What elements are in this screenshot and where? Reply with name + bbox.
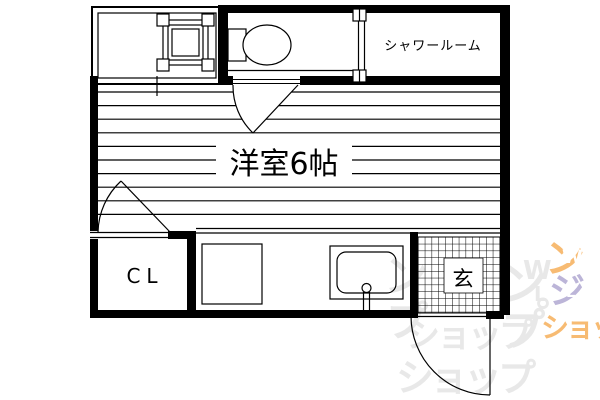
watermark-glyph: ショップ xyxy=(406,316,533,356)
wall-segment xyxy=(300,76,502,85)
toilet xyxy=(228,25,291,65)
appliance-space xyxy=(202,244,262,304)
wall-segment xyxy=(90,310,418,318)
watermark-glyph: L xyxy=(566,283,576,301)
wall-segment xyxy=(90,76,98,84)
wall-segment xyxy=(90,84,98,231)
floorplan-canvas: ン プ ン W L ° プ ショップ ショップ xyxy=(0,0,600,400)
toilet-shower-partition xyxy=(353,9,366,82)
main-room-label: 洋室6帖 xyxy=(229,147,338,182)
wall-segment xyxy=(187,237,196,312)
kitchen xyxy=(202,244,403,312)
faucet xyxy=(362,284,371,293)
toilet-door xyxy=(233,85,298,133)
toilet-door-threshold xyxy=(233,76,300,85)
closet-label: CL xyxy=(126,264,163,288)
toilet-bowl xyxy=(243,25,291,65)
floorplan: ン プ ン W L ° プ ショップ ショップ xyxy=(0,0,600,400)
watermark-glyph: ショップ xyxy=(396,356,536,400)
entrance-label: 玄 xyxy=(453,267,474,291)
watermark-glyph: ショップ xyxy=(541,311,600,344)
wall-segment xyxy=(90,239,98,318)
shower-room-label: シャワールーム xyxy=(384,39,482,54)
wall-segment xyxy=(500,5,510,315)
utility-room xyxy=(92,7,222,96)
wall-segment xyxy=(218,5,228,85)
watermark-colored: ン W ジ L ショップ xyxy=(541,236,600,344)
wall-segment xyxy=(218,76,233,85)
watermark-glyph: W xyxy=(562,246,583,268)
closet-door xyxy=(98,181,170,232)
wall-segment xyxy=(410,232,418,315)
